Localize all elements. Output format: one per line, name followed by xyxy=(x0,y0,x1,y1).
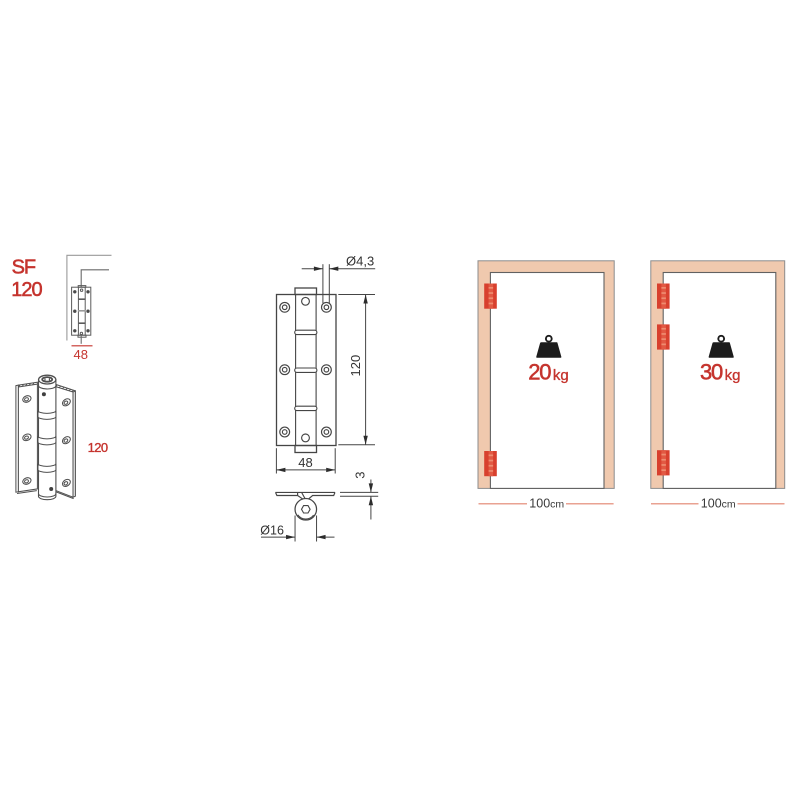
svg-text:SF: SF xyxy=(12,256,36,278)
svg-text:kg: kg xyxy=(553,367,569,384)
svg-text:100cm: 100cm xyxy=(529,497,564,511)
svg-text:120: 120 xyxy=(11,279,42,301)
svg-text:48: 48 xyxy=(74,347,88,362)
svg-text:Ø16: Ø16 xyxy=(260,524,284,538)
svg-text:120: 120 xyxy=(88,440,108,455)
svg-text:120: 120 xyxy=(348,355,363,377)
svg-text:20: 20 xyxy=(528,360,551,385)
svg-text:3: 3 xyxy=(352,472,367,479)
svg-text:Ø4,3: Ø4,3 xyxy=(346,253,374,268)
svg-text:kg: kg xyxy=(725,367,741,384)
svg-text:48: 48 xyxy=(298,455,312,470)
svg-text:30: 30 xyxy=(700,360,723,385)
svg-text:100cm: 100cm xyxy=(701,497,736,511)
